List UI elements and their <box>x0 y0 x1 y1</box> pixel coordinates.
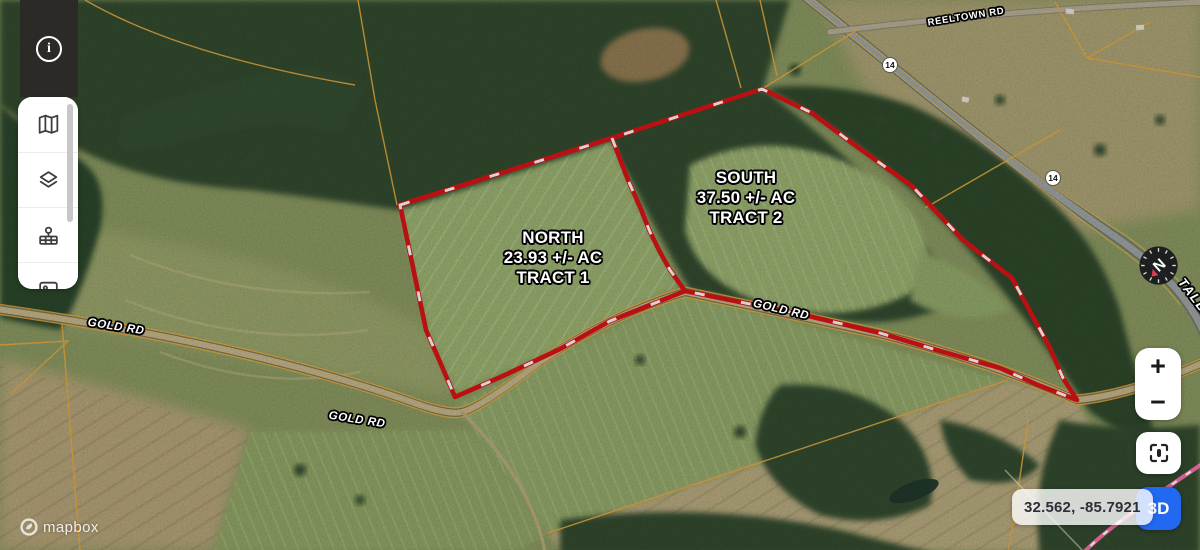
imagery-button[interactable] <box>18 262 78 289</box>
sidebar-scrollbar[interactable] <box>67 104 73 222</box>
tract1-acreage: 23.93 +/- AC <box>504 248 603 268</box>
tract1-number: TRACT 1 <box>504 268 603 288</box>
map-app: NORTH 23.93 +/- AC TRACT 1 SOUTH 37.50 +… <box>0 0 1200 550</box>
highway-14-shield-south: 14 <box>1045 170 1061 186</box>
info-button[interactable]: i <box>36 36 62 62</box>
tract1-label: NORTH 23.93 +/- AC TRACT 1 <box>504 228 603 288</box>
highway-14-shield-text2: 14 <box>1048 173 1057 183</box>
info-icon: i <box>47 42 51 56</box>
extent-icon <box>1148 442 1170 464</box>
mapbox-logo-icon <box>20 518 38 536</box>
mapbox-attribution[interactable]: mapbox <box>20 518 99 536</box>
tract2-acreage: 37.50 +/- AC <box>697 188 796 208</box>
fit-extent-button[interactable] <box>1136 432 1181 474</box>
highway-14-shield-text: 14 <box>885 60 894 70</box>
highway-14-shield-north: 14 <box>882 57 898 73</box>
sidebar-header: i <box>20 0 78 97</box>
tract2-title: SOUTH <box>697 168 796 188</box>
layers-icon <box>36 168 61 193</box>
mapbox-logo-text: mapbox <box>43 519 99 536</box>
tract2-number: TRACT 2 <box>697 208 796 228</box>
imagery-icon <box>36 278 61 290</box>
tract1-title: NORTH <box>504 228 603 248</box>
tract2-label: SOUTH 37.50 +/- AC TRACT 2 <box>697 168 796 228</box>
zoom-out-button[interactable]: − <box>1135 384 1181 420</box>
map-icon <box>36 112 61 137</box>
zoom-control-panel: + − <box>1135 348 1181 420</box>
legend-pin-icon <box>36 223 61 248</box>
sidebar-tool-panel <box>18 97 78 289</box>
coordinates-chip: 32.562, -85.7921 <box>1012 489 1153 525</box>
compass-control[interactable]: N <box>1138 245 1179 286</box>
zoom-in-button[interactable]: + <box>1135 348 1181 384</box>
